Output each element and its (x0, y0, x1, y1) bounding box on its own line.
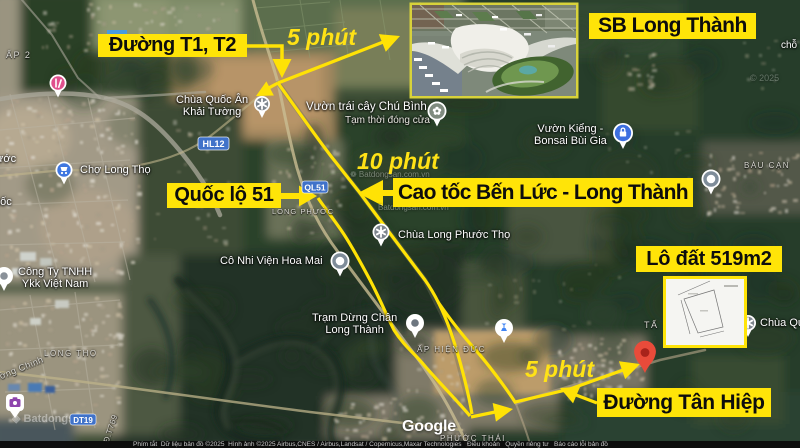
svg-text:HL12: HL12 (202, 139, 224, 149)
svg-text:DT19: DT19 (73, 416, 93, 425)
svg-text:QL51: QL51 (304, 183, 326, 193)
